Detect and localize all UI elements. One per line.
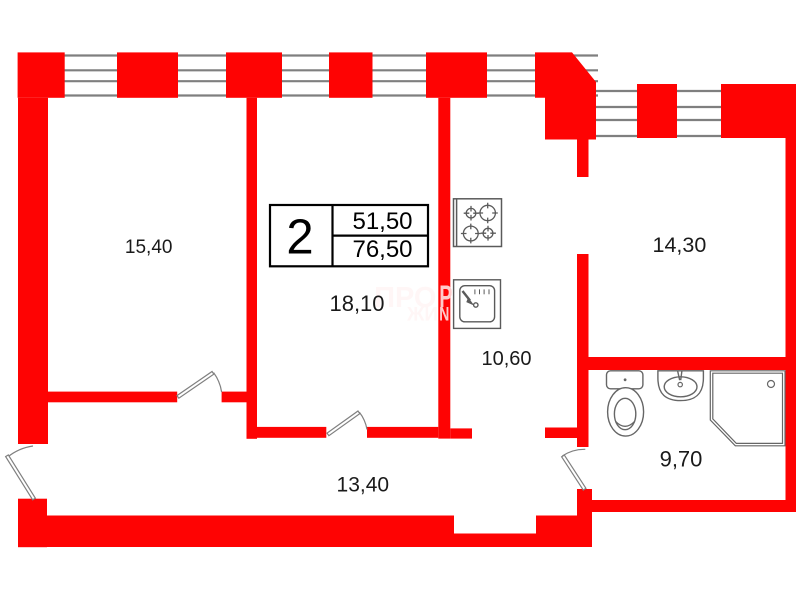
svg-text:10,60: 10,60	[481, 348, 531, 370]
svg-text:N: N	[439, 303, 449, 325]
svg-text:76,50: 76,50	[352, 236, 412, 263]
svg-text:2: 2	[286, 211, 313, 265]
svg-text:9,70: 9,70	[660, 446, 703, 471]
svg-text:18,10: 18,10	[329, 291, 384, 316]
svg-text:ЖИ: ЖИ	[406, 305, 438, 326]
svg-text:15,40: 15,40	[125, 237, 173, 258]
svg-text:14,30: 14,30	[652, 233, 706, 257]
svg-text:51,50: 51,50	[352, 208, 412, 235]
svg-text:13,40: 13,40	[337, 473, 390, 496]
